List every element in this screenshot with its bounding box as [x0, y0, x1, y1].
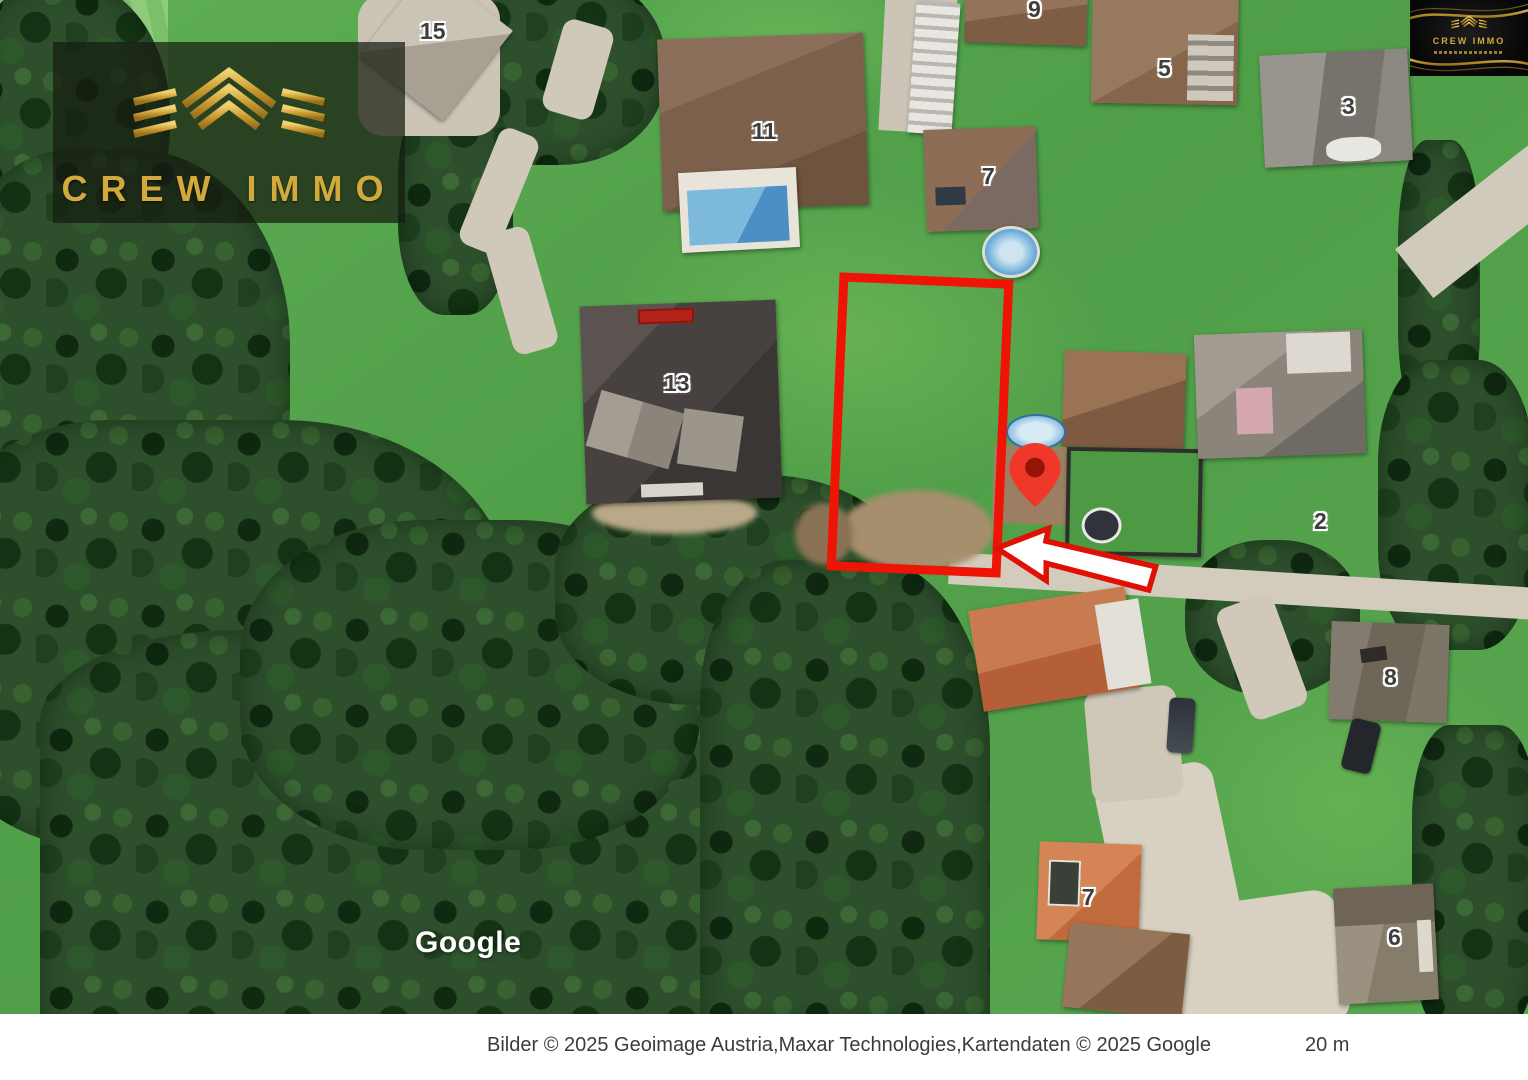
swimming-pool [687, 185, 790, 245]
parcel-outline [827, 272, 1014, 577]
house-annex-white [1095, 598, 1152, 690]
house-3-terrace [1326, 136, 1382, 163]
badge-tagline-line [1434, 51, 1504, 54]
house-13-roof [580, 300, 783, 505]
house-5-roof [1091, 0, 1239, 105]
house-label-8: 8 [1384, 664, 1397, 691]
house-2-pink-section [1236, 387, 1274, 434]
house-2-roof [1194, 329, 1366, 459]
porch [641, 482, 703, 497]
location-pin-icon [1009, 443, 1061, 507]
house-7-top-roof [923, 126, 1038, 232]
skylight [1360, 646, 1388, 663]
house-3-roof [1259, 48, 1413, 168]
house-label-9: 9 [1028, 0, 1041, 23]
listing-image: 15 11 9 7 5 3 13 2 8 7 6 Google CREW IMM… [0, 0, 1528, 1080]
house-13-wing [586, 390, 685, 469]
house-13-wing [677, 408, 744, 472]
house-label-3: 3 [1342, 93, 1355, 120]
crew-immo-logo-text: CREW IMMO [53, 168, 405, 210]
parked-car [1166, 697, 1196, 754]
path [1171, 887, 1353, 1014]
roof-sign [638, 307, 694, 324]
house-5-facade [1187, 34, 1234, 101]
house-label-11: 11 [752, 118, 776, 145]
house-label-2: 2 [1314, 508, 1327, 535]
badge-buildings-icon [1441, 12, 1497, 33]
house-label-7-top: 7 [982, 163, 995, 190]
greenhouse [907, 1, 960, 136]
house-6-roof [1333, 883, 1439, 1004]
google-watermark: Google [415, 926, 521, 960]
roof-window [1048, 860, 1082, 907]
house-label-13: 13 [664, 370, 690, 397]
solar-panel [935, 187, 966, 206]
house-9-roof [964, 0, 1088, 46]
house-label-7-bottom: 7 [1082, 884, 1095, 911]
pool-deck [678, 167, 800, 253]
house-6-white-edge [1417, 920, 1434, 973]
house-mid-roof [1061, 350, 1186, 450]
attribution-text: Bilder © 2025 Geoimage Austria,Maxar Tec… [487, 1034, 1211, 1057]
scale-label: 20 m [1305, 1034, 1349, 1057]
house-label-6: 6 [1388, 924, 1401, 951]
house-7-bottom-annex [1062, 922, 1190, 1014]
house-label-15: 15 [420, 18, 446, 45]
crew-immo-badge: CREW IMMO [1410, 0, 1528, 76]
attribution-bar: Bilder © 2025 Geoimage Austria,Maxar Tec… [0, 1014, 1528, 1080]
forest-patch [700, 560, 990, 1014]
house-2-white-section [1286, 332, 1351, 374]
crew-immo-buildings-icon [79, 50, 379, 160]
round-pool [982, 226, 1040, 278]
crew-immo-logo-plate: CREW IMMO [53, 42, 405, 223]
house-label-5: 5 [1158, 55, 1171, 82]
badge-logo-text: CREW IMMO [1410, 36, 1528, 46]
